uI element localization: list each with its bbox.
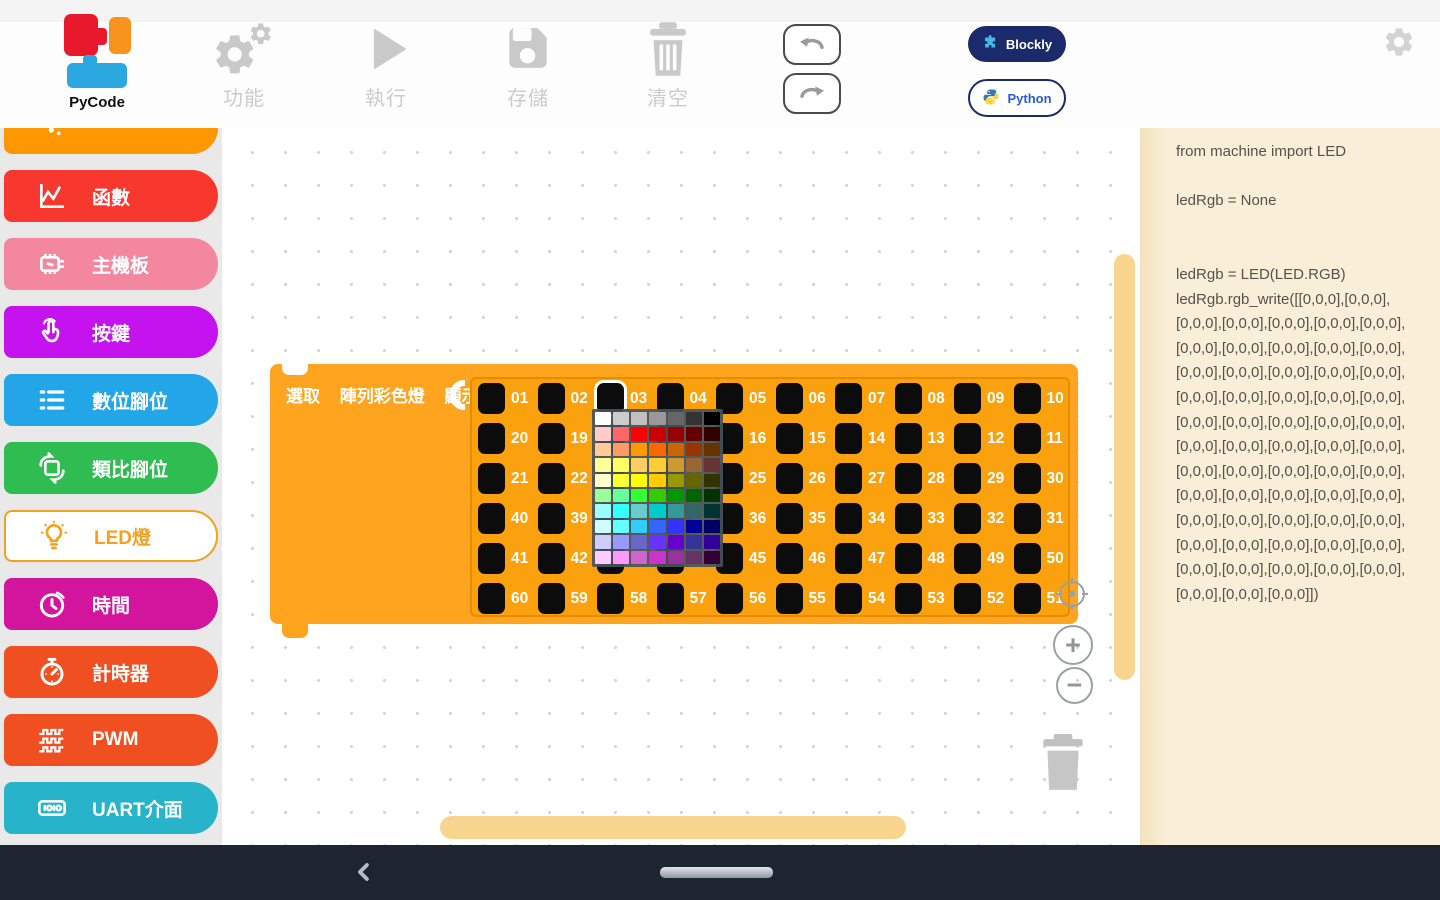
sidebar: 函數主機板按鍵數位腳位類比腳位LED燈時間計時器PWMUART介面 [0, 128, 222, 845]
code-line: from machine import LED [1176, 140, 1432, 165]
led-square-47[interactable] [835, 543, 862, 574]
blockly-toggle[interactable]: Blockly [968, 26, 1066, 62]
sidebar-item-label: 類比腳位 [92, 455, 168, 482]
led-number: 30 [1047, 470, 1079, 488]
led-square-39[interactable] [538, 503, 565, 534]
led-square-31[interactable] [1014, 503, 1041, 534]
color-swatch[interactable] [613, 412, 629, 425]
led-grid-panel: 0102030405060708091020191817161514131211… [470, 377, 1070, 617]
code-line: [0,0,0],[0,0,0],[0,0,0],[0,0,0],[0,0,0], [1176, 484, 1432, 509]
color-swatch[interactable] [595, 489, 611, 502]
home-pill[interactable] [660, 867, 773, 878]
vertical-scrollbar[interactable] [1114, 254, 1135, 680]
color-swatch[interactable] [613, 551, 629, 564]
color-swatch[interactable] [686, 412, 702, 425]
list-icon [36, 384, 68, 416]
workspace-trash-icon[interactable] [1038, 734, 1088, 792]
features-button[interactable]: 功能 [196, 20, 292, 116]
pwm-icon [36, 724, 68, 756]
target-icon [1052, 574, 1092, 619]
color-swatch[interactable] [631, 489, 647, 502]
sidebar-item-timer[interactable]: 計時器 [4, 646, 218, 698]
sidebar-item-label: UART介面 [92, 795, 183, 822]
led-square-12[interactable] [954, 423, 981, 454]
led-square-19[interactable] [538, 423, 565, 454]
sidebar-item-label: 數位腳位 [92, 387, 168, 414]
settings-gear-icon[interactable] [1382, 25, 1416, 59]
led-square-59[interactable] [538, 583, 565, 614]
code-line [1176, 165, 1432, 190]
logo-blue-piece [67, 63, 127, 88]
sidebar-item-led[interactable]: LED燈 [4, 510, 218, 562]
color-swatch[interactable] [686, 427, 702, 440]
led-square-34[interactable] [835, 503, 862, 534]
color-swatch[interactable] [704, 551, 720, 564]
color-swatch[interactable] [668, 427, 684, 440]
led-square-53[interactable] [895, 583, 922, 614]
undo-button[interactable] [783, 24, 841, 65]
color-swatch[interactable] [686, 520, 702, 533]
sidebar-item-analog-pin[interactable]: 類比腳位 [4, 442, 218, 494]
led-square-29[interactable] [954, 463, 981, 494]
color-swatch[interactable] [631, 427, 647, 440]
logo-red-piece [64, 14, 98, 56]
color-swatch[interactable] [686, 443, 702, 456]
sidebar-item-uart[interactable]: UART介面 [4, 782, 218, 834]
block-top-notch [282, 364, 308, 375]
zoom-out-button[interactable]: − [1056, 667, 1093, 704]
color-swatch[interactable] [668, 535, 684, 548]
run-button[interactable]: 執行 [338, 20, 434, 116]
led-square-20[interactable] [478, 423, 505, 454]
save-button[interactable]: 存儲 [480, 20, 576, 116]
color-swatch[interactable] [631, 551, 647, 564]
led-square-28[interactable] [895, 463, 922, 494]
led-square-51[interactable] [1014, 583, 1041, 614]
code-line: [0,0,0],[0,0,0],[0,0,0],[0,0,0],[0,0,0], [1176, 509, 1432, 534]
sidebar-item-variables[interactable] [4, 128, 218, 154]
center-target-button[interactable] [1052, 576, 1092, 616]
color-swatch[interactable] [704, 504, 720, 517]
bulb-icon [38, 520, 70, 552]
color-swatch[interactable] [613, 443, 629, 456]
sidebar-item-functions[interactable]: 函數 [4, 170, 218, 222]
code-line [1176, 238, 1432, 263]
workspace-canvas[interactable]: 選取 陣列彩色燈 顯示 0102030405060708091020191817… [222, 128, 1140, 845]
led-square-58[interactable] [597, 583, 624, 614]
led-square-46[interactable] [776, 543, 803, 574]
clear-button[interactable]: 清空 [620, 20, 716, 116]
led-square-54[interactable] [835, 583, 862, 614]
code-line: ledRgb = None [1176, 189, 1432, 214]
redo-arrow-icon [796, 78, 828, 109]
led-square-56[interactable] [716, 583, 743, 614]
sidebar-item-mainboard[interactable]: 主機板 [4, 238, 218, 290]
zoom-in-button[interactable]: + [1053, 625, 1093, 665]
color-swatch[interactable] [631, 443, 647, 456]
led-square-07[interactable] [835, 383, 862, 414]
led-square-14[interactable] [835, 423, 862, 454]
blockly-label: Blockly [1006, 37, 1052, 52]
code-line: [0,0,0],[0,0,0],[0,0,0],[0,0,0],[0,0,0], [1176, 386, 1432, 411]
pycode-logo: PyCode [60, 12, 134, 112]
led-square-33[interactable] [895, 503, 922, 534]
sidebar-item-label: 計時器 [92, 659, 149, 686]
color-swatch[interactable] [668, 489, 684, 502]
color-swatch[interactable] [649, 427, 665, 440]
color-swatch[interactable] [631, 504, 647, 517]
code-line [1176, 214, 1432, 239]
color-swatch[interactable] [686, 474, 702, 487]
color-swatch[interactable] [649, 474, 665, 487]
trash-icon [620, 20, 716, 82]
color-swatch[interactable] [613, 489, 629, 502]
sidebar-item-label: 函數 [92, 183, 130, 210]
led-square-15[interactable] [776, 423, 803, 454]
run-label: 執行 [338, 82, 434, 111]
led-square-26[interactable] [776, 463, 803, 494]
led-square-10[interactable] [1014, 383, 1041, 414]
color-swatch[interactable] [595, 535, 611, 548]
color-swatch[interactable] [595, 427, 611, 440]
puzzle-icon [982, 34, 999, 54]
minus-icon: − [1067, 670, 1083, 701]
color-swatch[interactable] [649, 520, 665, 533]
led-number: 10 [1047, 390, 1079, 408]
code-line: [0,0,0],[0,0,0],[0,0,0],[0,0,0],[0,0,0], [1176, 534, 1432, 559]
color-swatch[interactable] [595, 458, 611, 471]
color-swatch[interactable] [704, 535, 720, 548]
color-swatch[interactable] [631, 458, 647, 471]
stopwatch-icon [36, 656, 68, 688]
led-number: 31 [1047, 510, 1079, 528]
floppy-icon [480, 20, 576, 82]
led-square-32[interactable] [954, 503, 981, 534]
status-strip [0, 0, 1440, 22]
color-swatch[interactable] [595, 443, 611, 456]
play-icon [338, 20, 434, 82]
sidebar-item-time[interactable]: 時間 [4, 578, 218, 630]
led-square-52[interactable] [954, 583, 981, 614]
color-swatch[interactable] [649, 504, 665, 517]
board-icon [36, 248, 68, 280]
code-line: [0,0,0],[0,0,0],[0,0,0]]) [1176, 583, 1432, 608]
sidebar-item-buttons[interactable]: 按鍵 [4, 306, 218, 358]
color-swatch[interactable] [686, 489, 702, 502]
save-label: 存儲 [480, 82, 576, 111]
color-swatch[interactable] [686, 551, 702, 564]
color-swatch[interactable] [668, 412, 684, 425]
color-swatch[interactable] [649, 535, 665, 548]
block-field-device[interactable]: 陣列彩色燈 [340, 387, 425, 406]
code-line: [0,0,0],[0,0,0],[0,0,0],[0,0,0],[0,0,0], [1176, 435, 1432, 460]
color-swatch[interactable] [704, 489, 720, 502]
color-swatch[interactable] [613, 520, 629, 533]
sidebar-item-digital-pin[interactable]: 數位腳位 [4, 374, 218, 426]
logo-red-nub [94, 28, 107, 45]
led-square-01[interactable] [478, 383, 505, 414]
color-swatch[interactable] [668, 443, 684, 456]
chevron-left-icon [350, 873, 378, 890]
clear-label: 清空 [620, 82, 716, 111]
color-swatch[interactable] [668, 504, 684, 517]
led-square-41[interactable] [478, 543, 505, 574]
rgb-led-block[interactable]: 選取 陣列彩色燈 顯示 0102030405060708091020191817… [270, 364, 1078, 624]
led-square-06[interactable] [776, 383, 803, 414]
android-nav-bar [0, 845, 1440, 900]
horizontal-scrollbar[interactable] [440, 816, 906, 839]
color-swatch[interactable] [649, 412, 665, 425]
color-swatch[interactable] [668, 551, 684, 564]
color-swatch[interactable] [668, 520, 684, 533]
color-swatch[interactable] [649, 489, 665, 502]
led-square-42[interactable] [538, 543, 565, 574]
python-toggle[interactable]: Python [968, 79, 1066, 117]
color-swatch[interactable] [613, 535, 629, 548]
led-square-57[interactable] [657, 583, 684, 614]
features-label: 功能 [196, 82, 292, 111]
gear-double-icon [196, 20, 292, 82]
color-swatch[interactable] [631, 412, 647, 425]
chart-icon [36, 180, 68, 212]
sidebar-item-pwm[interactable]: PWM [4, 714, 218, 766]
color-swatch[interactable] [668, 458, 684, 471]
color-swatch[interactable] [595, 504, 611, 517]
color-swatch[interactable] [595, 412, 611, 425]
color-swatch[interactable] [704, 427, 720, 440]
led-square-11[interactable] [1014, 423, 1041, 454]
color-swatch[interactable] [686, 535, 702, 548]
led-square-40[interactable] [478, 503, 505, 534]
led-square-13[interactable] [895, 423, 922, 454]
block-bottom-tab [282, 624, 308, 638]
color-swatch[interactable] [613, 474, 629, 487]
color-swatch[interactable] [595, 551, 611, 564]
sidebar-item-label: 按鍵 [92, 319, 130, 346]
code-text: from machine import LED ledRgb = None le… [1176, 140, 1432, 607]
touch-icon [36, 316, 68, 348]
code-line: [0,0,0],[0,0,0],[0,0,0],[0,0,0],[0,0,0], [1176, 460, 1432, 485]
code-line: [0,0,0],[0,0,0],[0,0,0],[0,0,0],[0,0,0], [1176, 312, 1432, 337]
led-square-02[interactable] [538, 383, 565, 414]
top-toolbar: PyCode 功能 執行 存儲 [0, 0, 1440, 128]
led-square-49[interactable] [954, 543, 981, 574]
color-swatch[interactable] [649, 458, 665, 471]
code-line: [0,0,0],[0,0,0],[0,0,0],[0,0,0],[0,0,0], [1176, 411, 1432, 436]
led-square-60[interactable] [478, 583, 505, 614]
logo-orange-piece [109, 17, 131, 54]
color-picker-popup [592, 409, 723, 567]
led-square-09[interactable] [954, 383, 981, 414]
color-swatch[interactable] [649, 443, 665, 456]
color-swatch[interactable] [668, 474, 684, 487]
color-swatch[interactable] [595, 474, 611, 487]
color-swatch[interactable] [631, 520, 647, 533]
color-swatch[interactable] [631, 535, 647, 548]
color-swatch[interactable] [649, 551, 665, 564]
led-square-48[interactable] [895, 543, 922, 574]
logo-text: PyCode [60, 94, 134, 111]
code-line: ledRgb = LED(LED.RGB) [1176, 263, 1432, 288]
color-swatch[interactable] [631, 474, 647, 487]
color-swatch[interactable] [704, 520, 720, 533]
led-square-55[interactable] [776, 583, 803, 614]
led-number: 50 [1047, 550, 1079, 568]
redo-button[interactable] [783, 73, 841, 114]
color-swatch[interactable] [704, 443, 720, 456]
python-icon [982, 88, 1000, 109]
block-field-select[interactable]: 選取 [286, 387, 320, 406]
clock-icon [36, 588, 68, 620]
led-number: 11 [1047, 430, 1079, 448]
led-square-27[interactable] [835, 463, 862, 494]
led-square-08[interactable] [895, 383, 922, 414]
uart-icon [36, 792, 68, 824]
color-swatch[interactable] [686, 504, 702, 517]
undo-arrow-icon [796, 29, 828, 60]
cycle-icon [36, 452, 68, 484]
dots-icon [36, 128, 68, 144]
sidebar-item-label: LED燈 [94, 523, 151, 550]
python-label: Python [1007, 91, 1051, 106]
color-swatch[interactable] [595, 520, 611, 533]
code-panel: from machine import LED ledRgb = None le… [1140, 128, 1440, 845]
color-swatch[interactable] [613, 458, 629, 471]
led-square-35[interactable] [776, 503, 803, 534]
plus-icon: + [1065, 630, 1081, 661]
code-line: [0,0,0],[0,0,0],[0,0,0],[0,0,0],[0,0,0], [1176, 361, 1432, 386]
led-square-50[interactable] [1014, 543, 1041, 574]
code-line: ledRgb.rgb_write([[0,0,0],[0,0,0], [1176, 288, 1432, 313]
sidebar-item-label: 時間 [92, 591, 130, 618]
code-line: [0,0,0],[0,0,0],[0,0,0],[0,0,0],[0,0,0], [1176, 558, 1432, 583]
sidebar-item-label: PWM [92, 729, 138, 751]
sidebar-item-label: 主機板 [92, 251, 149, 278]
code-line: [0,0,0],[0,0,0],[0,0,0],[0,0,0],[0,0,0], [1176, 337, 1432, 362]
color-swatch[interactable] [704, 458, 720, 471]
led-square-21[interactable] [478, 463, 505, 494]
color-swatch[interactable] [613, 427, 629, 440]
color-swatch[interactable] [613, 504, 629, 517]
logo-blue-nub [83, 55, 97, 66]
led-square-22[interactable] [538, 463, 565, 494]
led-square-30[interactable] [1014, 463, 1041, 494]
color-swatch[interactable] [686, 458, 702, 471]
back-button[interactable] [350, 858, 380, 888]
color-swatch[interactable] [704, 474, 720, 487]
color-swatch[interactable] [704, 412, 720, 425]
